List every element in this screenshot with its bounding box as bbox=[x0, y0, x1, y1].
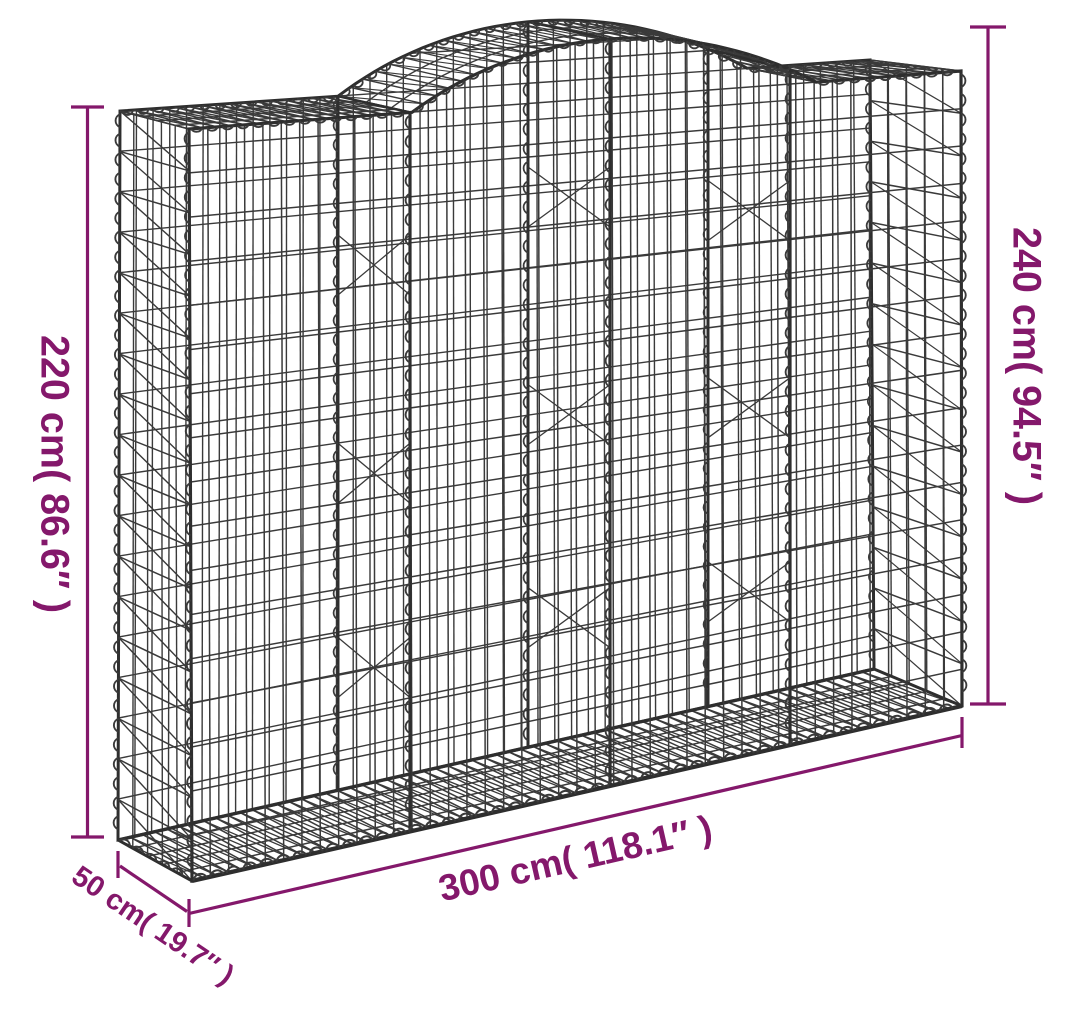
svg-text:240 cm( 94.5″ ): 240 cm( 94.5″ ) bbox=[1005, 227, 1049, 505]
svg-text:220 cm( 86.6″ ): 220 cm( 86.6″ ) bbox=[33, 335, 77, 613]
